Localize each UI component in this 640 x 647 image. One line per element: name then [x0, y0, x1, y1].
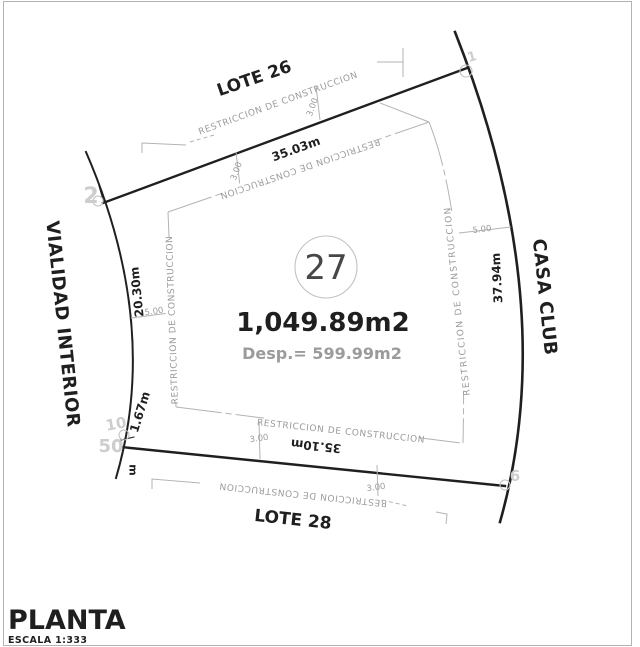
setback-front-top-left-value: 3.00: [229, 161, 245, 182]
vertex-label-2: 2: [83, 184, 98, 209]
boundary-top-line: [103, 68, 467, 203]
setback-side-left-value: 5.00: [144, 306, 164, 319]
leader-bottom-outer-right: [436, 512, 447, 524]
leader-bottom-outer-left: [152, 479, 200, 489]
restriction-label-left-inner-text: RESTRICCION DE CONSTRUCCION: [165, 235, 181, 404]
dim-bottom-label: 35.10m: [290, 436, 342, 455]
setback-front-bottom-left-value: 3.00: [249, 433, 269, 446]
lot-number-text: 27: [304, 248, 347, 288]
sheet-title: PLANTA: [8, 605, 126, 636]
dim-right-label: 37.94m: [489, 252, 506, 303]
facility-right-label: CASA CLUB: [528, 238, 561, 357]
restriction-label-left-inner: RESTRICCION DE CONSTRUCCION: [163, 235, 181, 404]
setback-side-right-value: 5.00: [472, 224, 492, 236]
setback-front-bottom-right-value: 3.00: [366, 482, 386, 495]
leader-top-outer-left: [142, 143, 186, 153]
boundary-right-curve: [455, 32, 523, 522]
vertex-label-6: 6: [510, 467, 520, 485]
unit-mark-label: m: [127, 464, 140, 475]
restriction-label-right-inner: RESTRICCION DE CONSTRUCCION: [441, 206, 473, 397]
vertex-label-50: 50: [98, 436, 123, 457]
leader-top-right-diagonal: [380, 103, 429, 122]
restriction-label-bottom-inner: RESTRICCION DE CONSTRUCCION: [256, 416, 425, 446]
neighbor-top-label: LOTE 26: [214, 57, 294, 101]
plan-sheet: 1 2 10 50 6 m LOTE 26 LOTE 28 VIALIDAD I…: [0, 0, 640, 647]
site-plan-svg: 1 2 10 50 6 m LOTE 26 LOTE 28 VIALIDAD I…: [0, 0, 640, 647]
lot-number-bubble: 27: [295, 236, 357, 298]
restriction-label-bottom-outer: RESTRICCION DE CONSTRUCCION: [219, 480, 388, 508]
lot-displacement-text: Desp.= 599.99m2: [242, 344, 402, 363]
sheet-scale: ESCALA 1:333: [8, 635, 87, 646]
street-left-label: VIALIDAD INTERIOR: [41, 220, 84, 428]
vertex-label-10: 10: [104, 413, 128, 434]
neighbor-bottom-label: LOTE 28: [253, 506, 332, 534]
lot-area-text: 1,049.89m2: [236, 308, 409, 338]
